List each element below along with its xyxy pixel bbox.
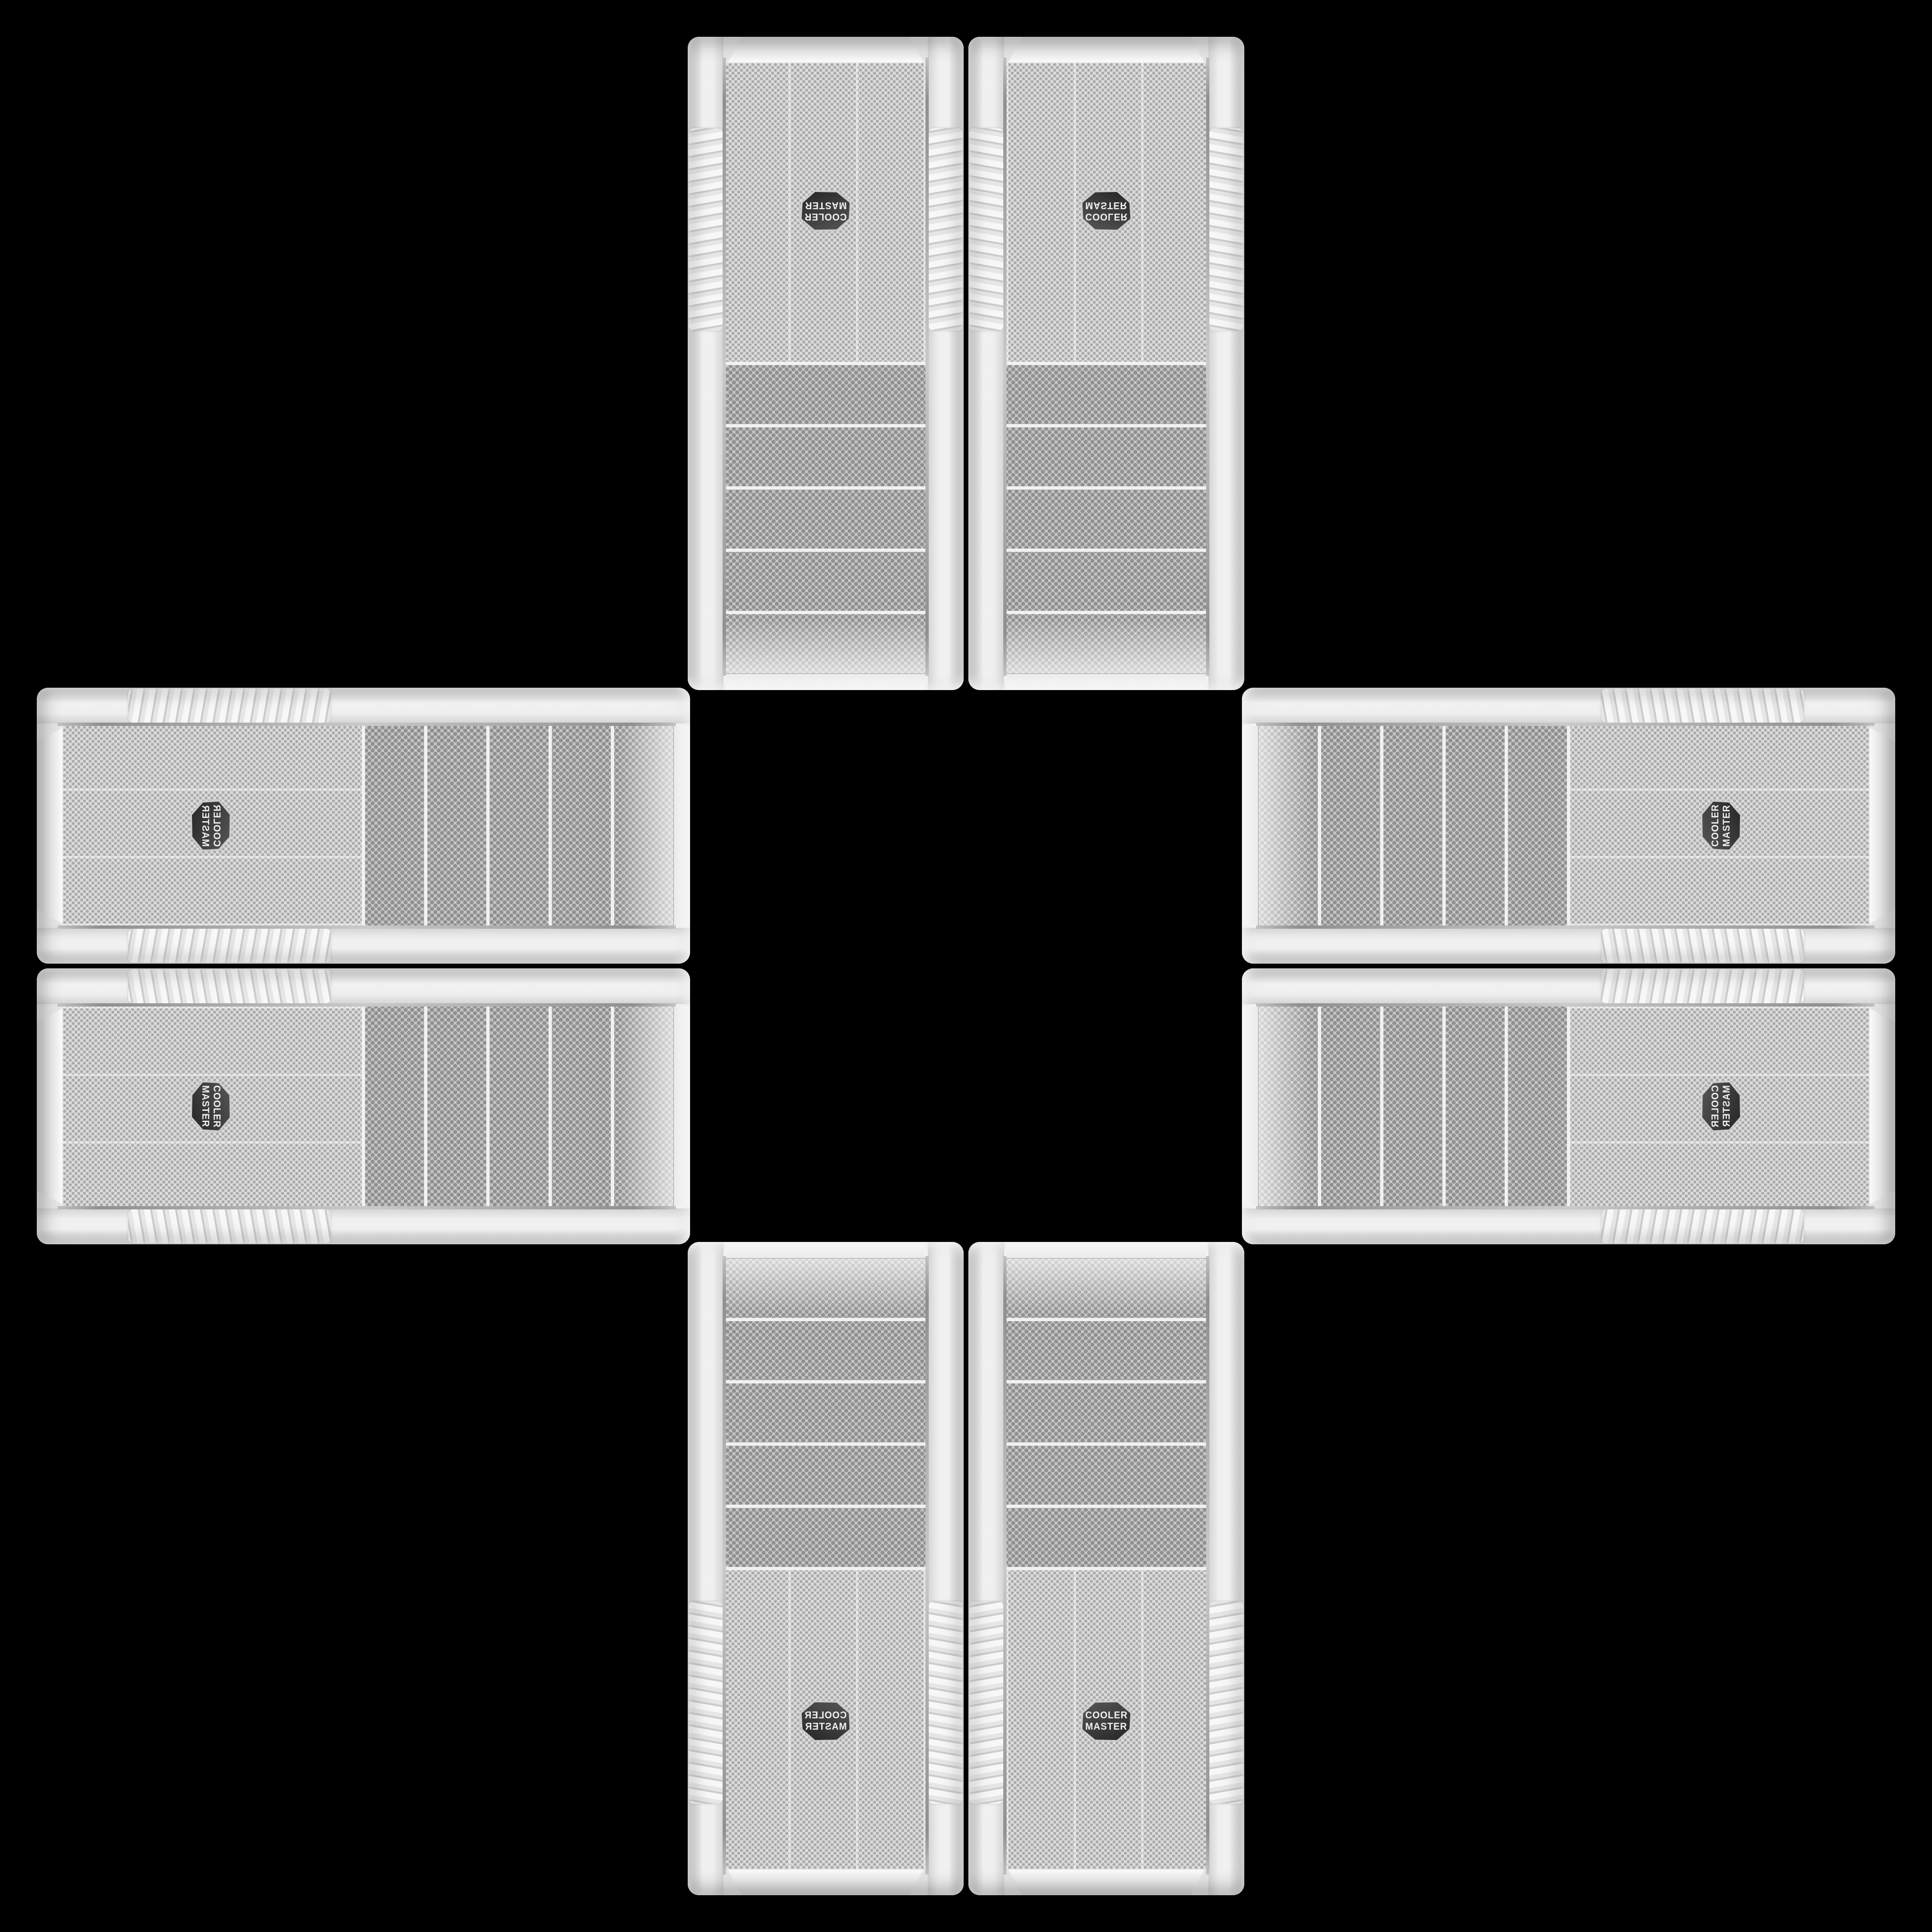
badge-text-line2: MASTER <box>805 200 847 211</box>
badge-text-line2: MASTER <box>200 1085 211 1127</box>
top-bezel <box>1242 726 1259 925</box>
case-right-bottom: COOLER MASTER <box>1242 968 1895 1244</box>
top-bezel <box>673 726 690 925</box>
intake-mesh: COOLER MASTER <box>63 1007 362 1206</box>
bottom-bezel <box>37 1008 62 1204</box>
bottom-bezel <box>37 728 62 924</box>
rail-grip-ribs <box>128 969 331 1003</box>
badge-text-line1: COOLER <box>211 804 222 847</box>
chrome-trim-right <box>58 723 676 726</box>
case-left-bottom: COOLER MASTER <box>37 968 690 1244</box>
case-side-rail-left <box>37 968 690 1004</box>
rail-grip-ribs <box>929 128 963 331</box>
rail-grip-ribs <box>1209 128 1243 331</box>
drive-bay-mesh <box>1259 1007 1570 1206</box>
case-side-rail-left <box>968 1242 1004 1895</box>
rail-grip-ribs <box>1601 929 1804 963</box>
front-panel: COOLER MASTER <box>37 726 690 925</box>
cooler-master-badge: COOLER MASTER <box>800 190 852 232</box>
top-bezel <box>673 1007 690 1206</box>
badge-text-line2: MASTER <box>200 805 211 847</box>
rail-grip-ribs <box>689 128 723 331</box>
chrome-trim-left <box>58 925 676 929</box>
rail-grip-ribs <box>1601 689 1804 723</box>
front-panel: COOLER MASTER <box>1242 726 1895 925</box>
intake-mesh: COOLER MASTER <box>1570 1007 1869 1206</box>
drive-bay-mesh <box>362 726 673 925</box>
front-panel: COOLER MASTER <box>37 1007 690 1206</box>
case-left-top: COOLER MASTER <box>37 688 690 964</box>
cooler-master-badge: COOLER MASTER <box>190 1081 232 1133</box>
badge-text-line2: MASTER <box>1085 200 1127 211</box>
badge-text-line2: MASTER <box>1085 1721 1127 1732</box>
case-side-rail-right <box>688 37 724 690</box>
badge-text-line2: MASTER <box>1721 1085 1732 1127</box>
top-bezel <box>726 1242 925 1259</box>
case-bottom-right: COOLER MASTER <box>968 1242 1244 1895</box>
case-right-top: COOLER MASTER <box>1242 688 1895 964</box>
chrome-trim-right <box>1256 723 1874 726</box>
front-panel: COOLER MASTER <box>1007 37 1206 690</box>
chrome-trim-left <box>925 1256 929 1874</box>
badge-text-line1: COOLER <box>1085 211 1127 222</box>
rail-grip-ribs <box>128 689 331 723</box>
intake-mesh: COOLER MASTER <box>1007 63 1206 362</box>
drive-bay-mesh <box>726 362 925 673</box>
rail-grip-ribs <box>929 1601 963 1804</box>
case-side-rail-left <box>1242 928 1895 964</box>
intake-mesh: COOLER MASTER <box>726 63 925 362</box>
cooler-master-badge-face: COOLER MASTER <box>1083 1702 1131 1740</box>
bottom-bezel <box>728 1870 924 1895</box>
cooler-master-badge-face: COOLER MASTER <box>1702 1083 1740 1131</box>
badge-text-line2: MASTER <box>1721 805 1732 847</box>
case-side-rail-right <box>1208 1242 1244 1895</box>
chrome-trim-right <box>1206 1256 1209 1874</box>
badge-text-line1: COOLER <box>1710 1085 1721 1127</box>
chrome-trim-right <box>1256 1206 1874 1209</box>
case-side-rail-left <box>928 1242 964 1895</box>
bottom-bezel <box>1870 1008 1895 1204</box>
case-side-rail-right <box>688 1242 724 1895</box>
case-top-right: COOLER MASTER <box>968 37 1244 690</box>
cooler-master-badge-face: COOLER MASTER <box>192 802 230 850</box>
case-side-rail-right <box>37 1208 690 1244</box>
badge-text-line1: COOLER <box>211 1085 222 1127</box>
intake-mesh: COOLER MASTER <box>1007 1570 1206 1869</box>
drive-bay-mesh <box>1007 362 1206 673</box>
chrome-trim-right <box>723 58 726 676</box>
rail-grip-ribs <box>1601 969 1804 1003</box>
case-side-rail-right <box>1208 37 1244 690</box>
cooler-master-badge: COOLER MASTER <box>800 1700 852 1742</box>
drive-bay-mesh <box>1007 1259 1206 1570</box>
rail-grip-ribs <box>969 1601 1003 1804</box>
cooler-master-badge-face: COOLER MASTER <box>802 192 850 230</box>
cooler-master-badge-face: COOLER MASTER <box>802 1702 850 1740</box>
chrome-trim-left <box>1256 925 1874 929</box>
cooler-master-badge-face: COOLER MASTER <box>1702 802 1740 850</box>
bottom-bezel <box>1008 37 1204 62</box>
front-panel: COOLER MASTER <box>1007 1242 1206 1895</box>
case-side-rail-left <box>37 928 690 964</box>
case-side-rail-left <box>928 37 964 690</box>
top-bezel <box>726 673 925 690</box>
case-bottom-left: COOLER MASTER <box>688 1242 964 1895</box>
badge-text-line1: COOLER <box>804 211 847 222</box>
rail-grip-ribs <box>1601 1209 1804 1243</box>
badge-text-line1: COOLER <box>1085 1710 1127 1721</box>
top-bezel <box>1007 1242 1206 1259</box>
case-side-rail-left <box>1242 968 1895 1004</box>
chrome-trim-right <box>58 1206 676 1209</box>
chrome-trim-left <box>1003 1256 1007 1874</box>
front-panel: COOLER MASTER <box>726 1242 925 1895</box>
case-side-rail-right <box>1242 1208 1895 1244</box>
badge-text-line1: COOLER <box>804 1710 847 1721</box>
top-bezel <box>1242 1007 1259 1206</box>
rail-grip-ribs <box>128 929 331 963</box>
intake-mesh: COOLER MASTER <box>63 726 362 925</box>
case-top-left: COOLER MASTER <box>688 37 964 690</box>
intake-mesh: COOLER MASTER <box>1570 726 1869 925</box>
badge-text-line1: COOLER <box>1710 804 1721 847</box>
top-bezel <box>1007 673 1206 690</box>
front-panel: COOLER MASTER <box>1242 1007 1895 1206</box>
cooler-master-badge: COOLER MASTER <box>1081 190 1133 232</box>
drive-bay-mesh <box>726 1259 925 1570</box>
cooler-master-badge: COOLER MASTER <box>1081 1700 1133 1742</box>
cooler-master-badge-face: COOLER MASTER <box>192 1083 230 1131</box>
bottom-bezel <box>1870 728 1895 924</box>
chrome-trim-left <box>1256 1003 1874 1007</box>
case-side-rail-left <box>968 37 1004 690</box>
chrome-trim-left <box>1003 58 1007 676</box>
cooler-master-badge: COOLER MASTER <box>1700 1081 1742 1133</box>
chrome-trim-left <box>58 1003 676 1007</box>
chrome-trim-left <box>925 58 929 676</box>
rail-grip-ribs <box>1209 1601 1243 1804</box>
drive-bay-mesh <box>1259 726 1570 925</box>
chrome-trim-right <box>723 1256 726 1874</box>
front-panel: COOLER MASTER <box>726 37 925 690</box>
cooler-master-badge-face: COOLER MASTER <box>1083 192 1131 230</box>
badge-text-line2: MASTER <box>805 1721 847 1732</box>
cooler-master-badge: COOLER MASTER <box>190 800 232 852</box>
bottom-bezel <box>728 37 924 62</box>
drive-bay-mesh <box>362 1007 673 1206</box>
cooler-master-badge: COOLER MASTER <box>1700 800 1742 852</box>
case-side-rail-right <box>1242 688 1895 724</box>
bottom-bezel <box>1008 1870 1204 1895</box>
rail-grip-ribs <box>128 1209 331 1243</box>
intake-mesh: COOLER MASTER <box>726 1570 925 1869</box>
collage: COOLER MASTER COOLER MASTER <box>0 0 1932 1932</box>
chrome-trim-right <box>1206 58 1209 676</box>
rail-grip-ribs <box>689 1601 723 1804</box>
case-side-rail-right <box>37 688 690 724</box>
rail-grip-ribs <box>969 128 1003 331</box>
